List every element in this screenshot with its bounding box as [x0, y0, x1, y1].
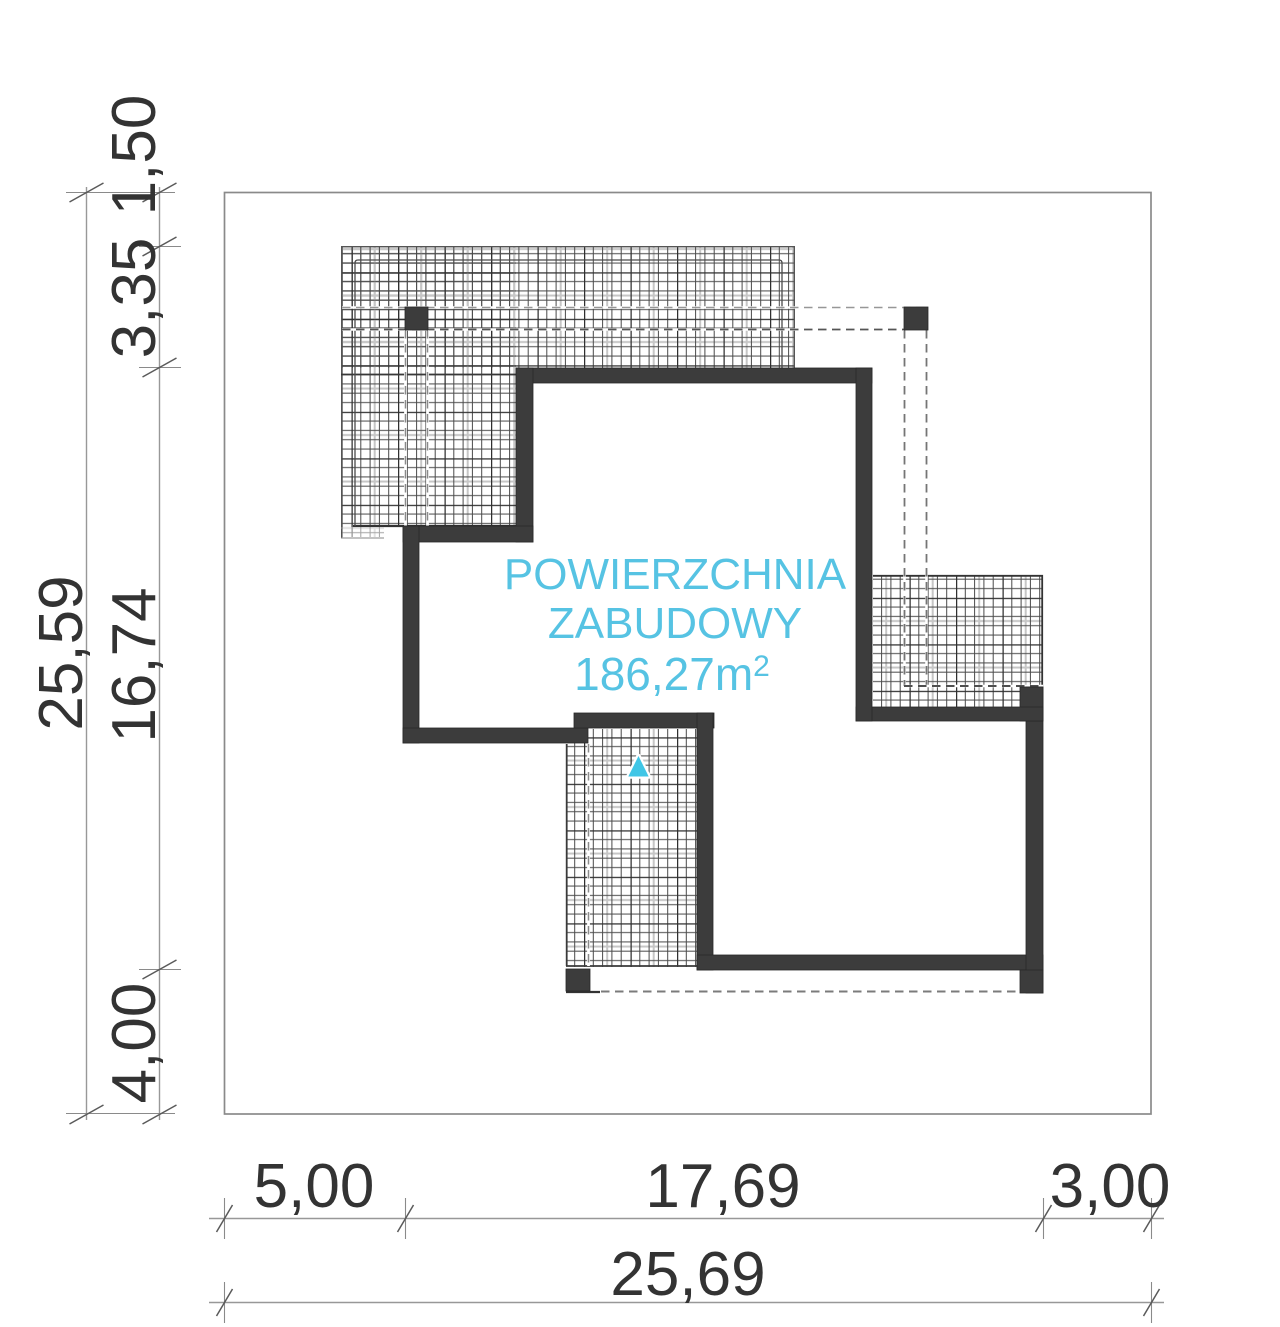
- svg-text:3,00: 3,00: [1050, 1152, 1171, 1221]
- svg-text:POWIERZCHNIA: POWIERZCHNIA: [504, 550, 847, 599]
- svg-text:186,27m2: 186,27m2: [574, 648, 770, 700]
- svg-text:4,00: 4,00: [100, 983, 169, 1104]
- svg-text:25,59: 25,59: [27, 575, 96, 730]
- svg-text:1,50: 1,50: [100, 95, 169, 216]
- svg-text:25,69: 25,69: [610, 1240, 765, 1309]
- svg-text:16,74: 16,74: [100, 587, 169, 742]
- svg-text:ZABUDOWY: ZABUDOWY: [548, 599, 802, 648]
- svg-text:3,35: 3,35: [100, 238, 169, 359]
- svg-text:17,69: 17,69: [645, 1152, 800, 1221]
- svg-text:5,00: 5,00: [254, 1152, 375, 1221]
